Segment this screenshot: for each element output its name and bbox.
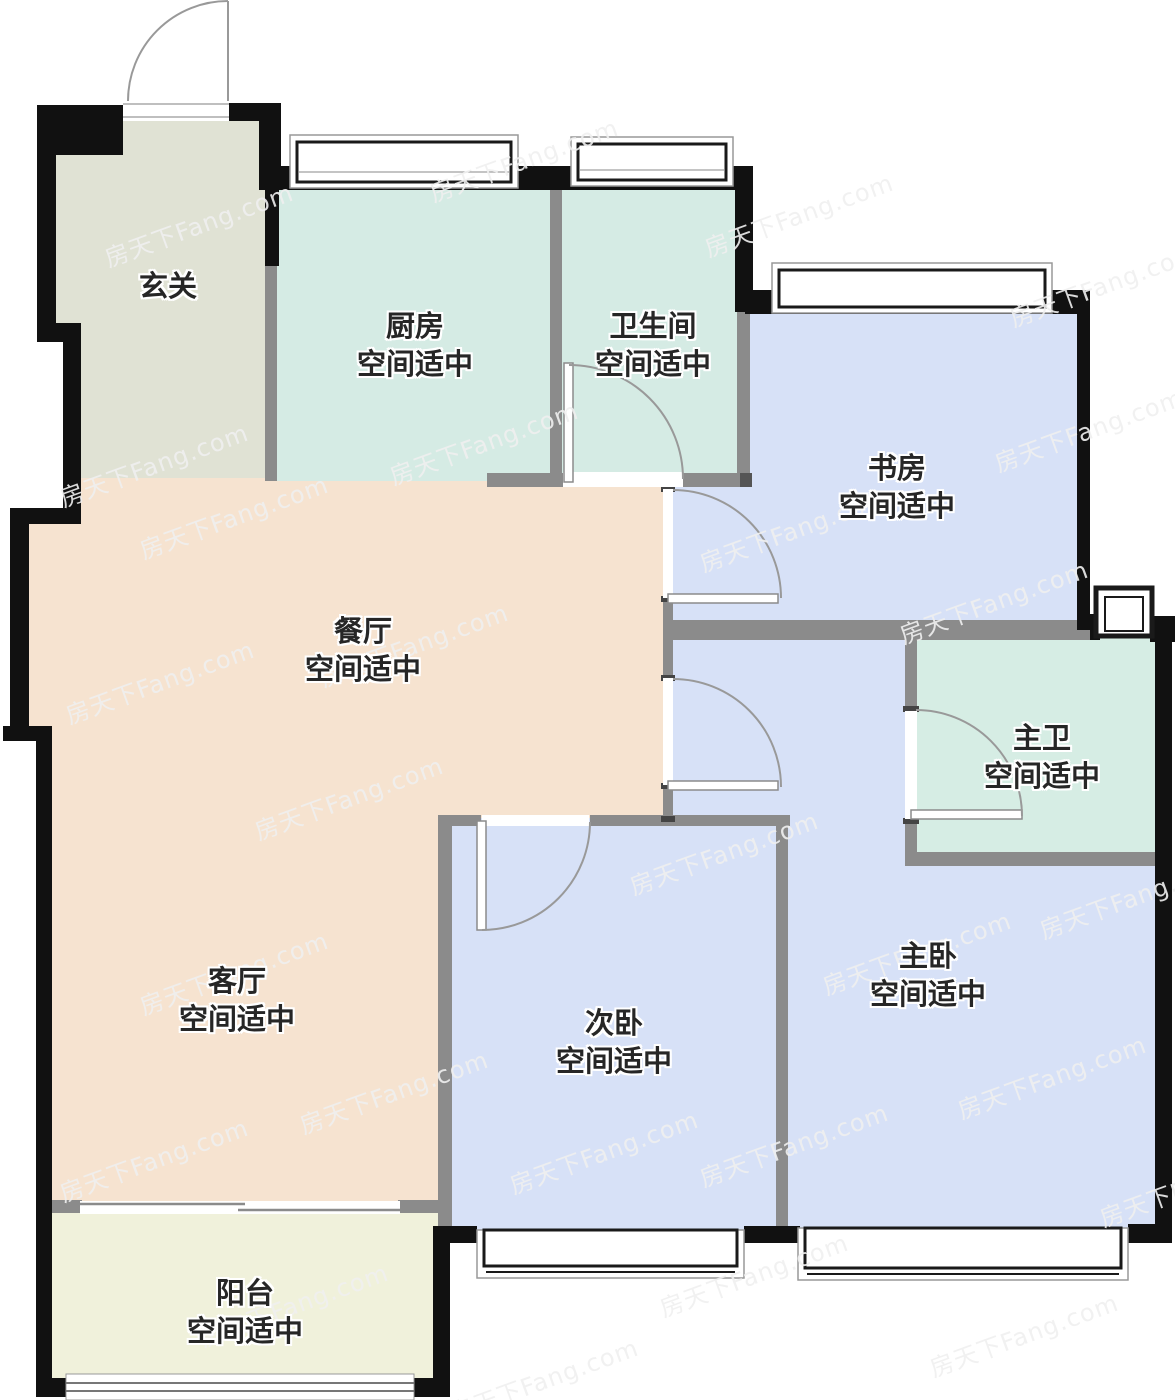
window-master-bath xyxy=(1096,588,1152,636)
window-second-bedroom xyxy=(477,1230,744,1278)
room-kitchen-area xyxy=(267,170,560,481)
window-bathroom xyxy=(571,137,733,186)
floorplan-drawing xyxy=(0,0,1175,1400)
window-kitchen xyxy=(290,135,518,188)
room-master-bath-area xyxy=(910,635,1162,860)
floorplan: 房天下Fang.com房天下Fang.com房天下Fang.com房天下Fang… xyxy=(0,0,1175,1400)
window-master-bedroom xyxy=(798,1228,1128,1280)
room-bathroom-area xyxy=(553,170,748,481)
room-entry-area xyxy=(56,120,267,478)
window-balcony xyxy=(66,1374,414,1400)
room-balcony-area xyxy=(50,1205,445,1390)
window-study xyxy=(772,263,1052,313)
room-second-bedroom-area xyxy=(440,818,790,1235)
door-entry xyxy=(123,1,229,121)
door-balcony-sliding xyxy=(80,1201,400,1214)
